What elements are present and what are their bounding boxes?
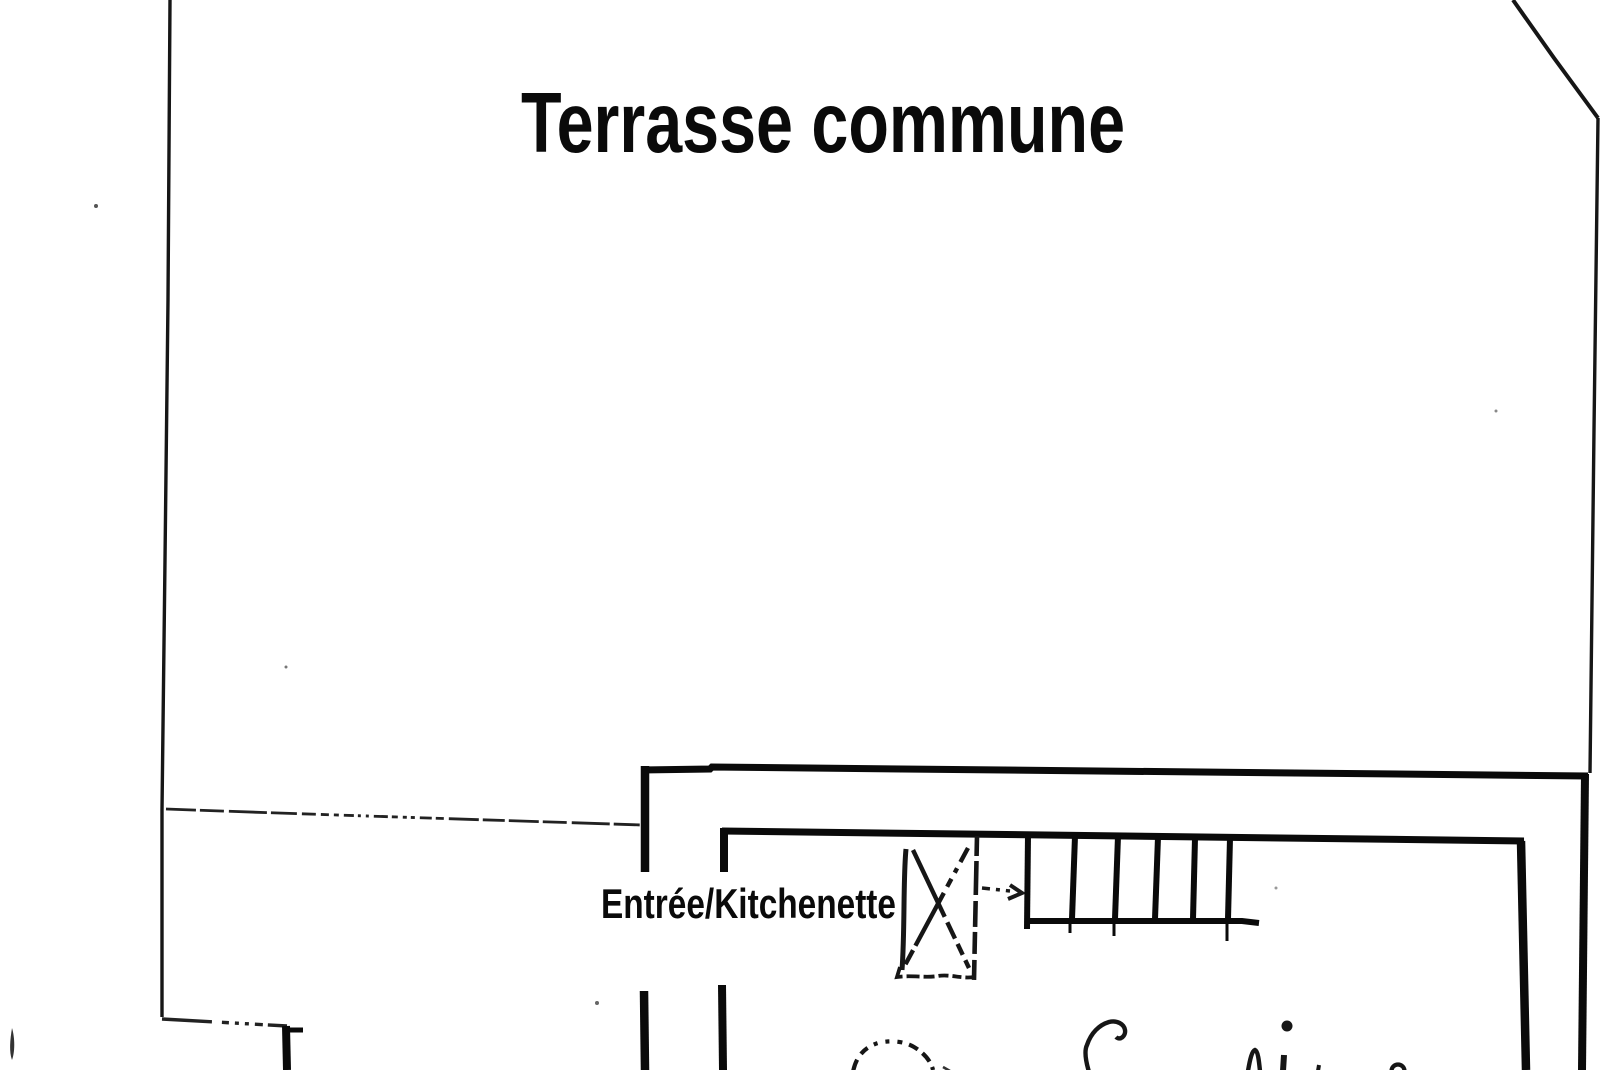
svg-text:Entrée/Kitchenette: Entrée/Kitchenette xyxy=(601,880,896,927)
svg-text:Terrasse commune: Terrasse commune xyxy=(521,76,1125,171)
